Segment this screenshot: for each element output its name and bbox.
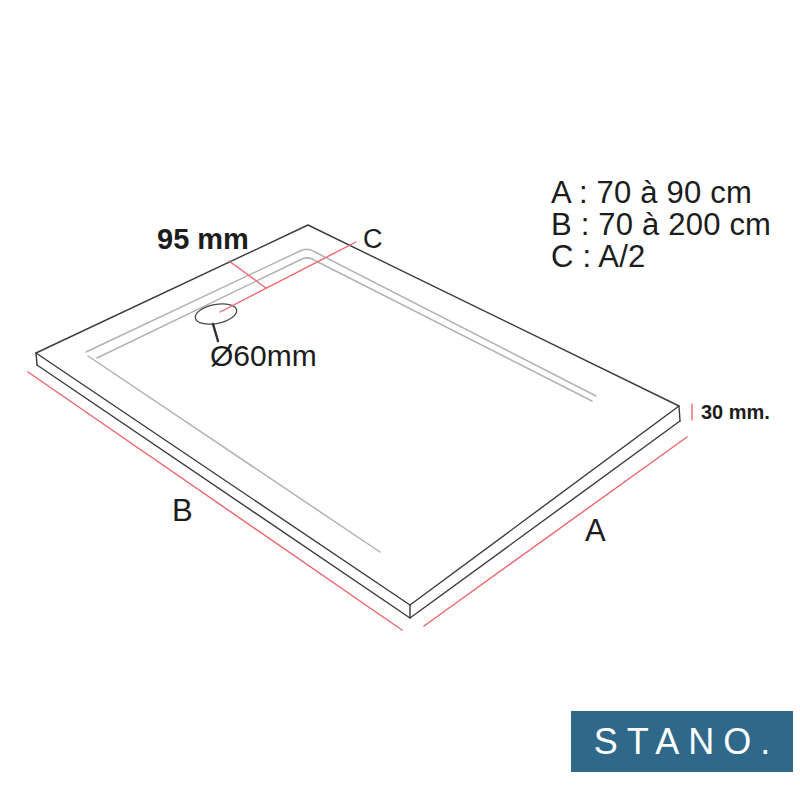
dimension-b-label: B bbox=[172, 493, 193, 528]
legend-line-a: A : 70 à 90 cm bbox=[551, 177, 771, 209]
dimension-line-a bbox=[424, 437, 687, 626]
dimension-tick-95mm bbox=[229, 261, 266, 288]
stano-logo-text: STANO. bbox=[594, 721, 779, 763]
drain-diameter-label: Ø60mm bbox=[210, 339, 317, 372]
shower-tray-technical-drawing: 95 mm C Ø60mm 30 mm. B A bbox=[0, 0, 800, 800]
dimension-c-label: C bbox=[363, 224, 383, 254]
tray-corner-verticals bbox=[36, 353, 680, 618]
inner-rim-line-bottom-left bbox=[88, 356, 380, 552]
thickness-label: 30 mm. bbox=[701, 401, 770, 423]
legend-line-b: B : 70 à 200 cm bbox=[551, 209, 771, 241]
drain-hole bbox=[194, 301, 239, 328]
dimension-legend: A : 70 à 90 cm B : 70 à 200 cm C : A/2 bbox=[551, 177, 771, 273]
dimension-a-label: A bbox=[585, 513, 606, 548]
tray-slab-bottom-edges bbox=[37, 365, 680, 618]
stano-logo: STANO. bbox=[571, 711, 793, 772]
inner-rim-line-inner bbox=[97, 258, 592, 401]
inner-rim-line-outer bbox=[86, 249, 596, 396]
dimension-line-b bbox=[28, 372, 402, 630]
dimension-95mm-label: 95 mm bbox=[157, 223, 249, 255]
shower-tray-spec-page: 95 mm C Ø60mm 30 mm. B A A : 70 à 90 cm … bbox=[0, 0, 800, 800]
legend-line-c: C : A/2 bbox=[551, 241, 771, 273]
